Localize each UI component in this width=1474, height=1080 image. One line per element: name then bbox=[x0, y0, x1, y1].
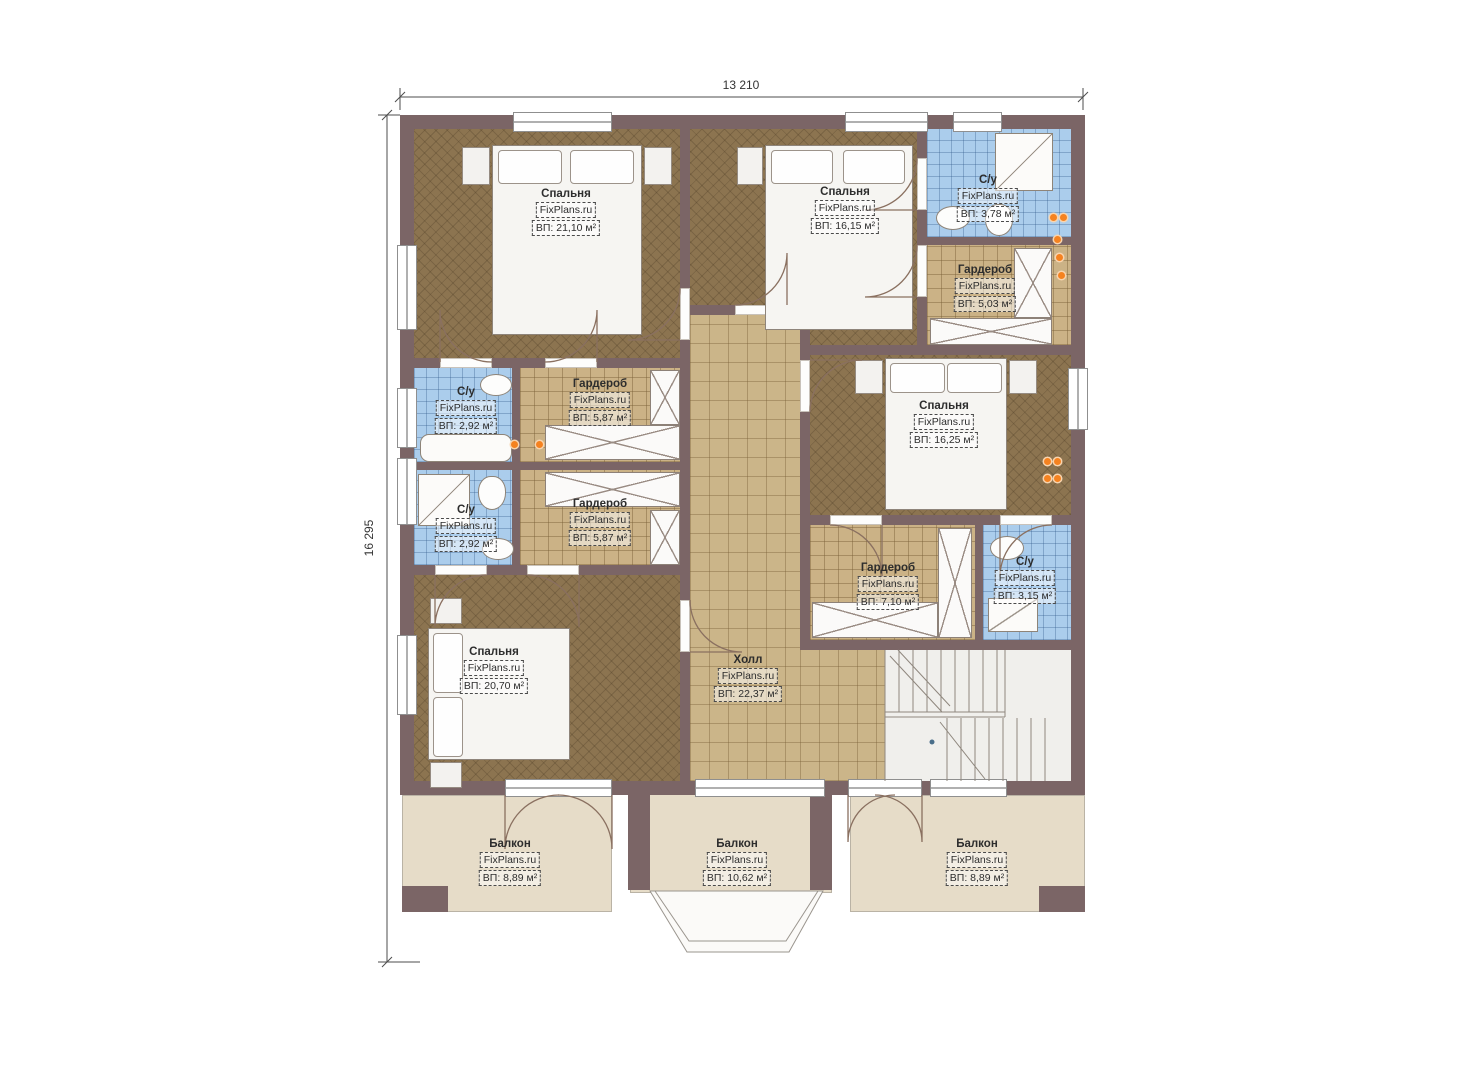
door-opening bbox=[680, 600, 690, 652]
power-outlet-icon bbox=[1044, 475, 1051, 482]
room-label-bathroom-top-right: С/у FixPlans.ru ВП: 3,78 м² bbox=[957, 174, 1019, 222]
wall-exterior-right bbox=[1071, 115, 1085, 795]
wardrobe-unit bbox=[650, 510, 680, 565]
wall-balcony-stub bbox=[810, 790, 832, 890]
door-opening bbox=[545, 358, 597, 368]
room-area: ВП: 3,15 м² bbox=[994, 588, 1056, 604]
room-area: ВП: 5,87 м² bbox=[569, 410, 631, 426]
door-opening bbox=[830, 515, 882, 525]
window bbox=[397, 388, 417, 448]
power-outlet-icon bbox=[1044, 458, 1051, 465]
room-name: Холл bbox=[734, 654, 763, 666]
wall-segment bbox=[882, 515, 1000, 525]
watermark: FixPlans.ru bbox=[464, 660, 525, 676]
dimension-height-label: 16 295 bbox=[362, 520, 376, 557]
wall-segment bbox=[1052, 515, 1071, 525]
balcony-door-opening bbox=[695, 779, 825, 797]
room-label-hall: Холл FixPlans.ru ВП: 22,37 м² bbox=[714, 654, 782, 702]
room-label-balcony-right: Балкон FixPlans.ru ВП: 8,89 м² bbox=[946, 838, 1008, 886]
wardrobe-unit bbox=[930, 318, 1052, 345]
wall-segment bbox=[492, 358, 545, 368]
wall-balcony-stub bbox=[1039, 886, 1085, 912]
power-outlet-icon bbox=[1056, 254, 1063, 261]
power-outlet-icon bbox=[536, 441, 543, 448]
window bbox=[397, 635, 417, 715]
room-name: Балкон bbox=[489, 838, 531, 850]
window bbox=[1068, 368, 1088, 430]
door-opening bbox=[800, 360, 810, 412]
room-label-bedroom-right: Спальня FixPlans.ru ВП: 16,25 м² bbox=[910, 400, 978, 448]
window bbox=[397, 245, 417, 330]
pillow bbox=[890, 363, 945, 393]
watermark: FixPlans.ru bbox=[718, 668, 779, 684]
room-area: ВП: 7,10 м² bbox=[857, 594, 919, 610]
pillow bbox=[498, 150, 562, 184]
pillow bbox=[843, 150, 905, 184]
watermark: FixPlans.ru bbox=[436, 400, 497, 416]
watermark: FixPlans.ru bbox=[815, 200, 876, 216]
room-label-bedroom-top-left: Спальня FixPlans.ru ВП: 21,10 м² bbox=[532, 188, 600, 236]
wall-segment bbox=[512, 368, 520, 570]
wall-segment bbox=[917, 129, 927, 158]
nightstand bbox=[644, 147, 672, 185]
door-opening bbox=[680, 288, 690, 340]
window bbox=[930, 779, 1007, 797]
wall-balcony-stub bbox=[402, 886, 448, 912]
nightstand bbox=[855, 360, 883, 394]
room-area: ВП: 22,37 м² bbox=[714, 686, 782, 702]
door-opening bbox=[1000, 515, 1052, 525]
room-label-wardrobe-mid-lower: Гардероб FixPlans.ru ВП: 5,87 м² bbox=[569, 498, 631, 546]
power-outlet-icon bbox=[511, 441, 518, 448]
room-label-wardrobe-mid-upper: Гардероб FixPlans.ru ВП: 5,87 м² bbox=[569, 378, 631, 426]
room-area: ВП: 3,78 м² bbox=[957, 206, 1019, 222]
door-opening bbox=[527, 565, 579, 575]
floor-plan-canvas: 13 210 16 295 Спальня FixPlans.ru ВП: 21… bbox=[0, 0, 1474, 1080]
room-label-bathroom-mid-lower: С/у FixPlans.ru ВП: 2,92 м² bbox=[435, 504, 497, 552]
window bbox=[397, 458, 417, 525]
wall-segment bbox=[680, 129, 690, 288]
room-name: Спальня bbox=[820, 186, 870, 198]
room-name: Гардероб bbox=[573, 498, 627, 510]
room-area: ВП: 8,89 м² bbox=[479, 870, 541, 886]
door-opening bbox=[440, 358, 492, 368]
wall-segment bbox=[414, 358, 440, 368]
watermark: FixPlans.ru bbox=[995, 570, 1056, 586]
watermark: FixPlans.ru bbox=[536, 202, 597, 218]
staircase-area bbox=[885, 650, 1071, 781]
wardrobe-unit bbox=[650, 370, 680, 425]
window bbox=[845, 112, 928, 132]
nightstand bbox=[737, 147, 763, 185]
room-name: Балкон bbox=[956, 838, 998, 850]
wall-segment bbox=[597, 358, 680, 368]
wall-segment bbox=[414, 462, 512, 470]
room-name: Спальня bbox=[541, 188, 591, 200]
wardrobe-unit bbox=[545, 425, 680, 460]
room-name: С/у bbox=[1016, 556, 1034, 568]
room-name: Гардероб bbox=[861, 562, 915, 574]
wardrobe-unit bbox=[1014, 248, 1052, 318]
watermark: FixPlans.ru bbox=[914, 414, 975, 430]
nightstand bbox=[1009, 360, 1037, 394]
room-name: Балкон bbox=[716, 838, 758, 850]
wall-segment bbox=[800, 412, 810, 650]
room-label-bathroom-mid-upper: С/у FixPlans.ru ВП: 2,92 м² bbox=[435, 386, 497, 434]
nightstand bbox=[430, 762, 462, 788]
room-floor-hall-extension bbox=[800, 650, 885, 781]
power-outlet-icon bbox=[1054, 475, 1061, 482]
bay-window bbox=[650, 891, 823, 952]
room-label-bathroom-right: С/у FixPlans.ru ВП: 3,15 м² bbox=[994, 556, 1056, 604]
watermark: FixPlans.ru bbox=[958, 188, 1019, 204]
wall-segment bbox=[800, 345, 1071, 355]
room-floor-hall bbox=[690, 315, 800, 781]
wall-segment bbox=[917, 297, 927, 345]
window bbox=[953, 112, 1002, 132]
power-outlet-icon bbox=[1050, 214, 1057, 221]
wall-segment bbox=[680, 652, 690, 781]
pillow bbox=[771, 150, 833, 184]
watermark: FixPlans.ru bbox=[947, 852, 1008, 868]
room-name: С/у bbox=[457, 504, 475, 516]
dimension-width-label: 13 210 bbox=[723, 78, 760, 92]
door-opening bbox=[435, 565, 487, 575]
room-label-bedroom-top-middle: Спальня FixPlans.ru ВП: 16,15 м² bbox=[811, 186, 879, 234]
door-opening bbox=[917, 245, 927, 297]
room-name: Спальня bbox=[919, 400, 969, 412]
wall-segment bbox=[579, 565, 680, 575]
watermark: FixPlans.ru bbox=[480, 852, 541, 868]
room-area: ВП: 5,87 м² bbox=[569, 530, 631, 546]
pillow bbox=[433, 697, 463, 757]
room-label-balcony-left: Балкон FixPlans.ru ВП: 8,89 м² bbox=[479, 838, 541, 886]
room-name: Гардероб bbox=[573, 378, 627, 390]
wall-segment bbox=[414, 565, 435, 575]
door-opening bbox=[917, 158, 927, 210]
pillow bbox=[570, 150, 634, 184]
wall-segment bbox=[810, 640, 1071, 650]
nightstand bbox=[462, 147, 490, 185]
room-area: ВП: 5,03 м² bbox=[954, 296, 1016, 312]
nightstand bbox=[430, 598, 462, 624]
pillow bbox=[947, 363, 1002, 393]
watermark: FixPlans.ru bbox=[707, 852, 768, 868]
room-label-wardrobe-right: Гардероб FixPlans.ru ВП: 7,10 м² bbox=[857, 562, 919, 610]
balcony-door-opening bbox=[848, 779, 922, 797]
room-area: ВП: 8,89 м² bbox=[946, 870, 1008, 886]
bathtub bbox=[420, 434, 512, 462]
watermark: FixPlans.ru bbox=[955, 278, 1016, 294]
room-label-wardrobe-top-right: Гардероб FixPlans.ru ВП: 5,03 м² bbox=[954, 264, 1016, 312]
room-name: Спальня bbox=[469, 646, 519, 658]
pillow bbox=[433, 633, 463, 693]
watermark: FixPlans.ru bbox=[570, 512, 631, 528]
room-name: С/у bbox=[457, 386, 475, 398]
room-area: ВП: 20,70 м² bbox=[460, 678, 528, 694]
wall-segment bbox=[975, 525, 983, 640]
wall-segment bbox=[917, 210, 927, 245]
balcony-door-opening bbox=[505, 779, 612, 797]
power-outlet-icon bbox=[1060, 214, 1067, 221]
room-area: ВП: 21,10 м² bbox=[532, 220, 600, 236]
wall-segment bbox=[810, 515, 830, 525]
room-name: С/у bbox=[979, 174, 997, 186]
room-label-balcony-middle: Балкон FixPlans.ru ВП: 10,62 м² bbox=[703, 838, 771, 886]
room-label-bedroom-bottom-left: Спальня FixPlans.ru ВП: 20,70 м² bbox=[460, 646, 528, 694]
watermark: FixPlans.ru bbox=[436, 518, 497, 534]
watermark: FixPlans.ru bbox=[570, 392, 631, 408]
wall-balcony-stub bbox=[628, 790, 650, 890]
room-area: ВП: 16,15 м² bbox=[811, 218, 879, 234]
room-name: Гардероб bbox=[958, 264, 1012, 276]
room-area: ВП: 2,92 м² bbox=[435, 536, 497, 552]
room-area: ВП: 10,62 м² bbox=[703, 870, 771, 886]
power-outlet-icon bbox=[1054, 236, 1061, 243]
room-area: ВП: 2,92 м² bbox=[435, 418, 497, 434]
wall-segment bbox=[520, 462, 680, 470]
wall-segment bbox=[487, 565, 527, 575]
power-outlet-icon bbox=[1058, 272, 1065, 279]
wardrobe-unit bbox=[938, 528, 972, 638]
wall-segment bbox=[680, 340, 690, 600]
power-outlet-icon bbox=[1054, 458, 1061, 465]
room-area: ВП: 16,25 м² bbox=[910, 432, 978, 448]
watermark: FixPlans.ru bbox=[858, 576, 919, 592]
wall-segment bbox=[927, 237, 1071, 245]
window bbox=[513, 112, 612, 132]
